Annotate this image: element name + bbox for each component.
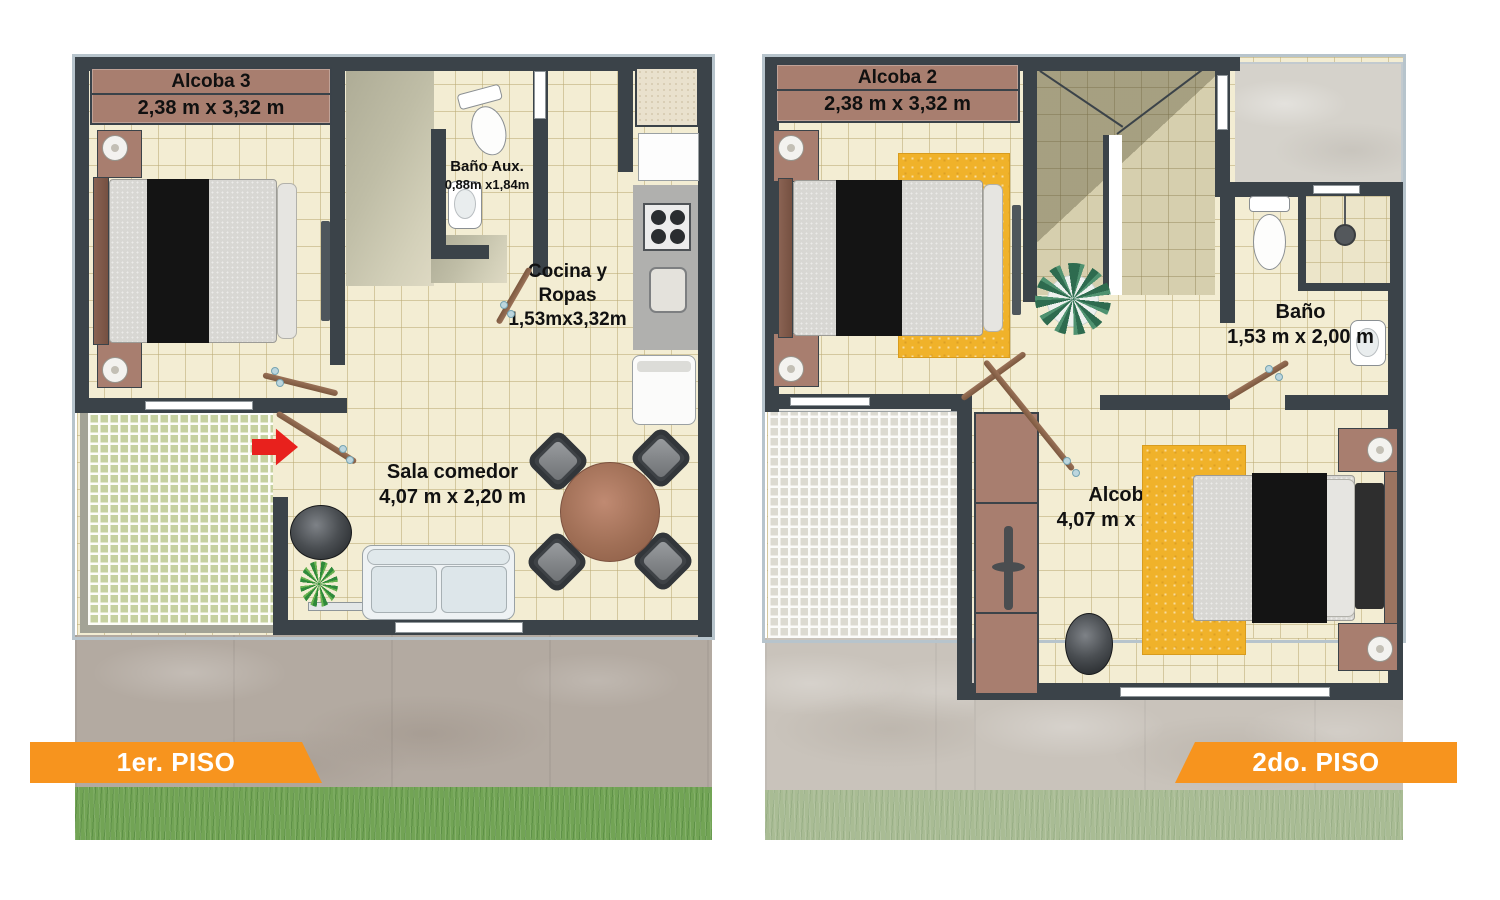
bano-dims: 1,53 m x 2,00 m: [1213, 325, 1388, 350]
door-hinge: [500, 301, 508, 309]
cocina-name-1: Cocina y: [495, 260, 640, 284]
door-hinge: [1063, 457, 1071, 465]
wardrobe-alcoba1: [974, 412, 1039, 695]
toilet-tank: [1249, 196, 1290, 212]
nightstand: [773, 333, 819, 387]
door-hinge: [339, 445, 347, 453]
burner: [651, 229, 666, 244]
wall-alcoba1-left: [957, 394, 972, 700]
burner: [651, 210, 666, 225]
sliding-door-panel: [1012, 205, 1021, 315]
bed-runner: [147, 179, 209, 343]
kitchen-sink-icon: [649, 267, 687, 313]
first-floor-banner: 1er. PISO: [30, 742, 322, 783]
stair-banister: [1109, 135, 1122, 295]
toilet-bowl: [1253, 214, 1286, 270]
wall-left: [75, 57, 89, 410]
lamp-icon: [102, 135, 128, 161]
stair-door-leaf: [1217, 75, 1228, 130]
banoaux-name: Baño Aux.: [433, 158, 541, 177]
grass-strip-floor2: [765, 790, 1403, 840]
burner: [670, 210, 685, 225]
staircase-floor1: [346, 71, 434, 286]
wall-kitchen-top: [618, 57, 633, 172]
door-hinge: [276, 379, 284, 387]
grass-strip-floor1: [75, 787, 712, 840]
bed-headboard: [778, 178, 793, 338]
nightstand: [773, 130, 819, 182]
lamp-icon: [1367, 636, 1393, 662]
wall-alcoba3-right: [330, 57, 345, 365]
bed-frame: [1384, 465, 1398, 627]
alcoba2-header: Alcoba 2 2,38 m x 3,32 m: [775, 63, 1020, 123]
bed-pillow: [277, 183, 297, 339]
wardrobe-divider: [976, 612, 1037, 614]
alcoba3-name: Alcoba 3: [92, 69, 330, 95]
toilet-icon: [1247, 196, 1292, 272]
bed-headboard: [93, 177, 109, 345]
sidewalk-floor2-left: [765, 638, 974, 790]
sofa-cushion: [441, 566, 507, 613]
patio-roof-grid: [768, 412, 958, 638]
wall-banoaux-bottom: [431, 245, 489, 259]
door-hinge: [271, 367, 279, 375]
terrace-void: [1235, 62, 1403, 197]
cocina-dims: 1,53mx3,32m: [495, 308, 640, 332]
sliding-door-panel: [321, 221, 330, 321]
lamp-icon: [778, 135, 804, 161]
alcoba2-window: [790, 397, 870, 406]
sala-window: [395, 622, 523, 633]
wall-bano-bottom-b: [1285, 395, 1403, 410]
burner: [670, 229, 685, 244]
door-hinge: [1275, 373, 1283, 381]
dining-table-icon: [560, 462, 660, 562]
sofa-icon: [362, 545, 515, 620]
door-hinge: [1072, 469, 1080, 477]
dining-set: [530, 433, 690, 590]
patio-floor1: [80, 398, 273, 633]
sofa-cushion: [371, 566, 437, 613]
nightstand: [1338, 623, 1398, 671]
bed-alcoba3: [93, 177, 300, 345]
wardrobe-divider: [976, 502, 1037, 504]
second-floor-plan: Alcoba 2 2,38 m x 3,32 m: [765, 45, 1403, 840]
bed-alcoba1: [1193, 465, 1398, 627]
second-floor-banner-label: 2do. PISO: [1252, 747, 1379, 778]
shower-wall-bottom: [1298, 283, 1390, 291]
wall-bano-bottom-a: [1100, 395, 1230, 410]
wall-patio-right: [273, 497, 288, 623]
banoaux-label: Baño Aux. 0,88m x1,84m: [433, 158, 541, 193]
bed-alcoba2: [778, 178, 1006, 338]
patio-frame-bottom: [80, 625, 273, 633]
washing-machine-icon: [632, 355, 696, 425]
sala-label: Sala comedor 4,07 m x 2,20 m: [370, 460, 535, 510]
first-floor-banner-label: 1er. PISO: [117, 747, 236, 778]
patio-paving: [88, 411, 273, 625]
alcoba3-window: [145, 401, 253, 410]
armchair-pouf-icon: [1065, 613, 1113, 675]
bano-label: Baño 1,53 m x 2,00 m: [1213, 300, 1388, 350]
floorplan-canvas: Alcoba 3 2,38 m x 3,32 m Baño Aux. 0,88m…: [0, 0, 1500, 900]
bed-runner: [1252, 473, 1327, 623]
bano-name: Baño: [1213, 300, 1388, 325]
second-floor-banner: 2do. PISO: [1175, 742, 1457, 783]
sala-name: Sala comedor: [370, 460, 535, 485]
fridge-icon: [638, 133, 699, 181]
shower-wall-left: [1298, 196, 1306, 291]
lamp-icon: [1367, 437, 1393, 463]
alcoba3-dims: 2,38 m x 3,32 m: [92, 95, 330, 121]
toilet-bowl: [466, 102, 512, 159]
plant-icon: [300, 561, 338, 607]
alcoba3-header: Alcoba 3 2,38 m x 3,32 m: [90, 67, 332, 125]
patio-frame-left: [80, 411, 88, 633]
shower-icon: [1298, 196, 1390, 291]
door-hinge: [346, 456, 354, 464]
sala-dims: 4,07 m x 2,20 m: [370, 485, 535, 510]
showerhead-icon: [1334, 224, 1356, 246]
kitchen-pantry: [635, 67, 699, 127]
nightstand: [97, 130, 142, 178]
nightstand: [97, 338, 142, 388]
bed-pillow: [983, 184, 1003, 332]
lamp-icon: [102, 357, 128, 383]
banoaux-door-leaf: [534, 71, 546, 119]
wardrobe-handle: [992, 562, 1025, 572]
armchair-pouf-icon: [290, 505, 352, 560]
wall-right: [698, 57, 712, 637]
alcoba2-dims: 2,38 m x 3,32 m: [777, 91, 1018, 117]
wall-alcoba2-right: [1023, 57, 1037, 302]
door-hinge: [507, 310, 515, 318]
alcoba2-name: Alcoba 2: [777, 65, 1018, 91]
stove-icon: [643, 203, 691, 251]
lamp-icon: [778, 356, 804, 382]
stairwell-floor2: [1033, 60, 1215, 295]
banoaux-dims: 0,88m x1,84m: [433, 177, 541, 193]
door-hinge: [1265, 365, 1273, 373]
palm-plant-icon: [1035, 263, 1111, 335]
sofa-back: [367, 549, 510, 565]
first-floor-plan: Alcoba 3 2,38 m x 3,32 m Baño Aux. 0,88m…: [75, 45, 712, 840]
bano-window: [1313, 185, 1360, 194]
nightstand: [1338, 428, 1398, 472]
bed-footboard: [1355, 483, 1384, 609]
alcoba1-window: [1120, 687, 1330, 697]
bed-runner: [836, 180, 902, 336]
